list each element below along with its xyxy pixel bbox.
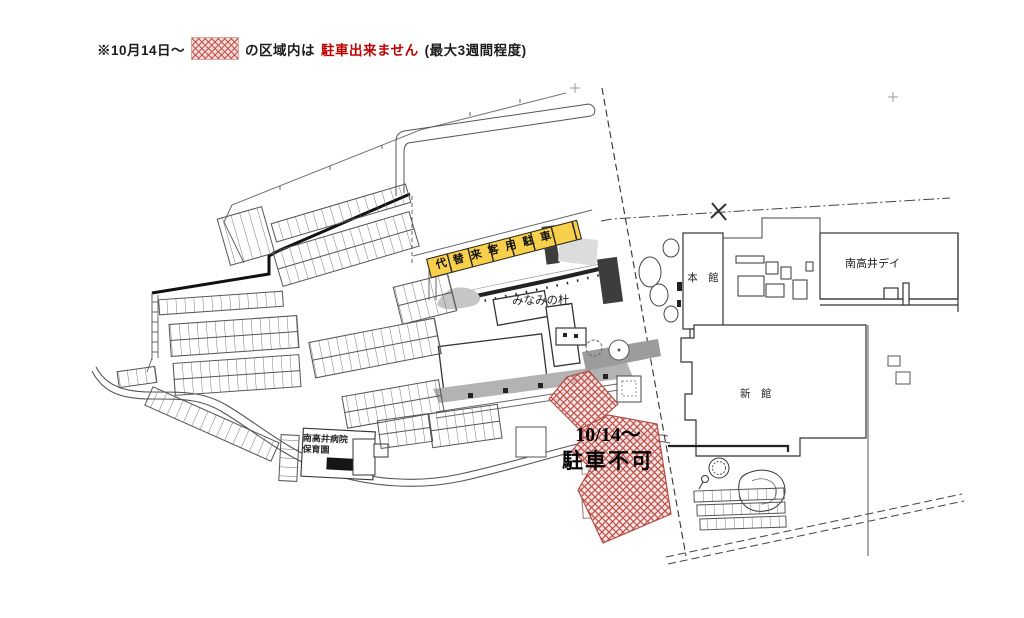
nursery-label-line2: 保育園 — [302, 444, 347, 457]
dark-structure-b — [597, 257, 623, 304]
main-building-label: 本 館 — [682, 270, 724, 285]
new-building-label: 新 館 — [740, 386, 772, 401]
notice-text: ※10月14日～ の区域内は 駐車出来ません (最大3週間程度) — [97, 37, 527, 60]
minamidai-day-label: 南高井デイ — [845, 255, 900, 271]
lamp-icon — [702, 476, 709, 483]
notice-highlight: 駐車出来ません — [321, 39, 419, 59]
new-building-outline — [681, 325, 866, 456]
closed-zone-date: 10/14～ — [556, 418, 660, 447]
closed-zone-text: 駐車不可 — [546, 445, 670, 475]
day-service-building-outline — [723, 218, 958, 312]
small-empty-lot — [516, 427, 546, 457]
east-edge-structures — [868, 325, 910, 556]
square-planter — [617, 376, 641, 402]
parking-closure-notice-map: ※10月14日～ の区域内は 駐車出来ません (最大3週間程度) 代替来客用駐車… — [0, 0, 1024, 618]
small-rooms — [736, 256, 813, 299]
site-plan-drawing — [0, 0, 1024, 618]
notice-suffix: (最大3週間程度) — [425, 39, 527, 59]
tree-cluster — [639, 239, 682, 322]
survey-plus-marks — [570, 83, 898, 102]
no-parking-hatch-swatch — [191, 37, 239, 60]
road-crossing-mark — [711, 203, 726, 220]
minami-no-mori-label: みなみの杜 — [512, 292, 570, 308]
nursery-label: 南高井病院 保育園 — [302, 433, 348, 457]
notice-prefix: ※10月14日～ — [97, 39, 185, 59]
notice-middle: の区域内は — [245, 39, 315, 59]
